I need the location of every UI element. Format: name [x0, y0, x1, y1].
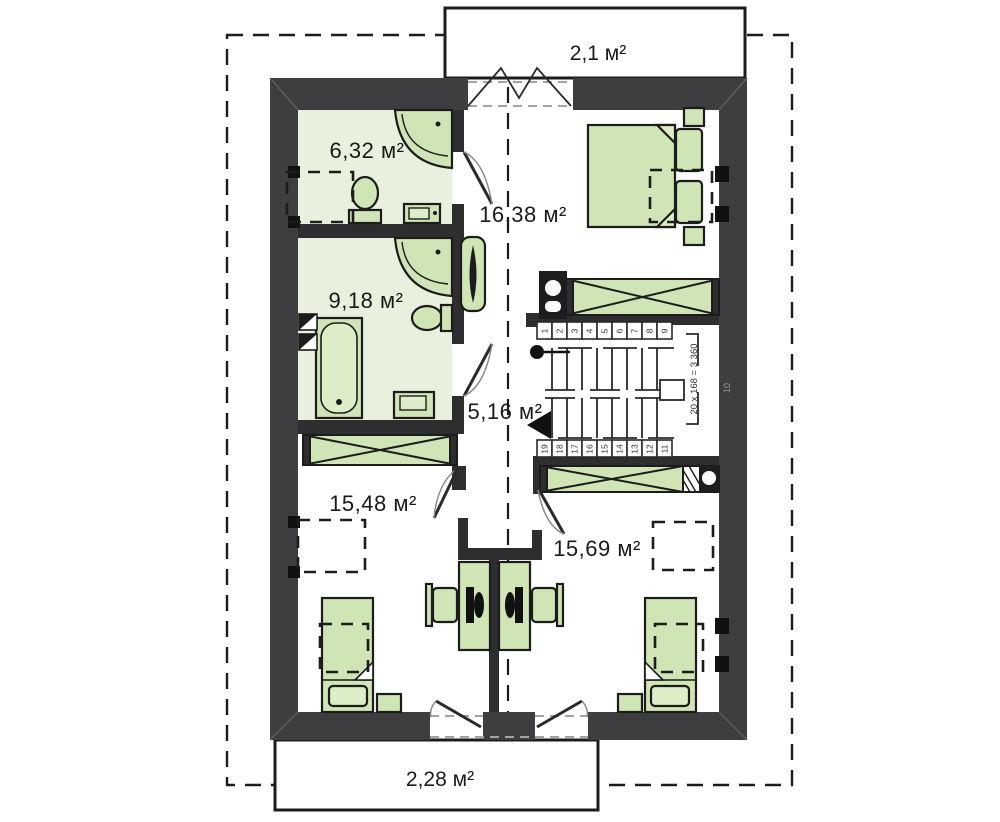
chair [433, 588, 457, 622]
nightstand [684, 227, 704, 245]
floor-plan-drawing: 1 2 3 4 5 6 7 8 9 [0, 0, 1000, 822]
door-bedroom-left [434, 468, 458, 518]
shower-drain [436, 122, 441, 127]
toilet-bowl [412, 306, 442, 330]
svg-text:11: 11 [660, 444, 670, 453]
pillow [651, 686, 689, 706]
wall-corridor-a [452, 110, 464, 152]
label-balcony-bottom: 2,28 м² [406, 768, 474, 791]
boiler-fixture [540, 272, 566, 318]
svg-text:9: 9 [660, 328, 670, 333]
svg-text:12: 12 [645, 444, 655, 454]
toilet-tank [441, 305, 452, 331]
svg-text:2: 2 [555, 328, 565, 333]
roof-window-right [653, 522, 713, 570]
door-bedroom-right [538, 488, 564, 534]
chair-back [557, 584, 563, 626]
svg-text:15: 15 [600, 444, 610, 454]
double-bed [588, 125, 675, 227]
wall-bath-bottom [298, 420, 464, 434]
wall-bath-divider [298, 224, 464, 238]
stair-landing-number: 10 [722, 383, 732, 393]
stair-dimension-note: 20 x 168 = 3 360 [689, 343, 700, 414]
nightstand [684, 108, 704, 126]
floor-plan-canvas: 1 2 3 4 5 6 7 8 9 [0, 0, 1000, 822]
stair-start-marker [530, 345, 544, 359]
label-bedroom-master: 16,38 м² [479, 202, 567, 227]
pillow [676, 129, 702, 171]
stair-step-numbers-down: 19 18 17 16 15 14 13 12 11 [540, 444, 670, 454]
svg-text:3: 3 [570, 328, 580, 333]
bathtub-drain [336, 399, 342, 405]
door-bathroom-large [464, 344, 492, 396]
chair-back [426, 584, 432, 626]
pillow [676, 181, 702, 223]
svg-text:8: 8 [645, 328, 655, 333]
svg-text:13: 13 [630, 444, 640, 454]
label-bathroom-large: 9,18 м² [329, 288, 404, 313]
svg-text:6: 6 [615, 328, 625, 333]
svg-text:7: 7 [630, 328, 640, 333]
toilet-bowl [352, 177, 378, 209]
door-balcony-left [436, 701, 481, 727]
svg-text:18: 18 [555, 444, 565, 454]
chimney-fixture [683, 466, 719, 492]
wall-bottom-pier [483, 712, 535, 740]
svg-text:16: 16 [585, 444, 595, 454]
pillow [329, 686, 367, 706]
computer-icon [466, 587, 474, 623]
door-bathroom-small [464, 152, 492, 204]
nightstand [618, 694, 642, 712]
shower-drain [436, 250, 441, 255]
label-bedroom-left: 15,48 м² [329, 491, 417, 516]
stair-step-numbers-up: 1 2 3 4 5 6 7 8 9 [540, 328, 670, 333]
label-balcony-top: 2,1 м² [570, 42, 626, 65]
bedroom-right-furniture [499, 562, 696, 712]
svg-text:14: 14 [615, 444, 625, 454]
nightstand [377, 694, 401, 712]
wall-funnel-bottom [458, 548, 542, 560]
wall-top-left [270, 78, 468, 110]
label-bedroom-right: 15,69 м² [553, 536, 641, 561]
roof-window-left [298, 520, 365, 572]
wardrobe-left [303, 435, 457, 465]
svg-text:17: 17 [570, 444, 580, 454]
chair [532, 588, 556, 622]
svg-text:4: 4 [585, 328, 595, 333]
door-balcony-right [537, 701, 582, 727]
plant-stand [461, 237, 485, 311]
wardrobe-right [540, 466, 683, 492]
svg-text:1: 1 [540, 328, 550, 333]
wardrobe-master [566, 279, 719, 315]
computer-icon [515, 587, 523, 623]
svg-text:5: 5 [600, 328, 610, 333]
label-bathroom-small: 6,32 м² [330, 138, 405, 163]
svg-text:19: 19 [540, 444, 550, 454]
staircase: 1 2 3 4 5 6 7 8 9 [527, 322, 732, 457]
label-hallway: 5,16 м² [468, 399, 543, 424]
bedroom-left-furniture [322, 562, 490, 712]
